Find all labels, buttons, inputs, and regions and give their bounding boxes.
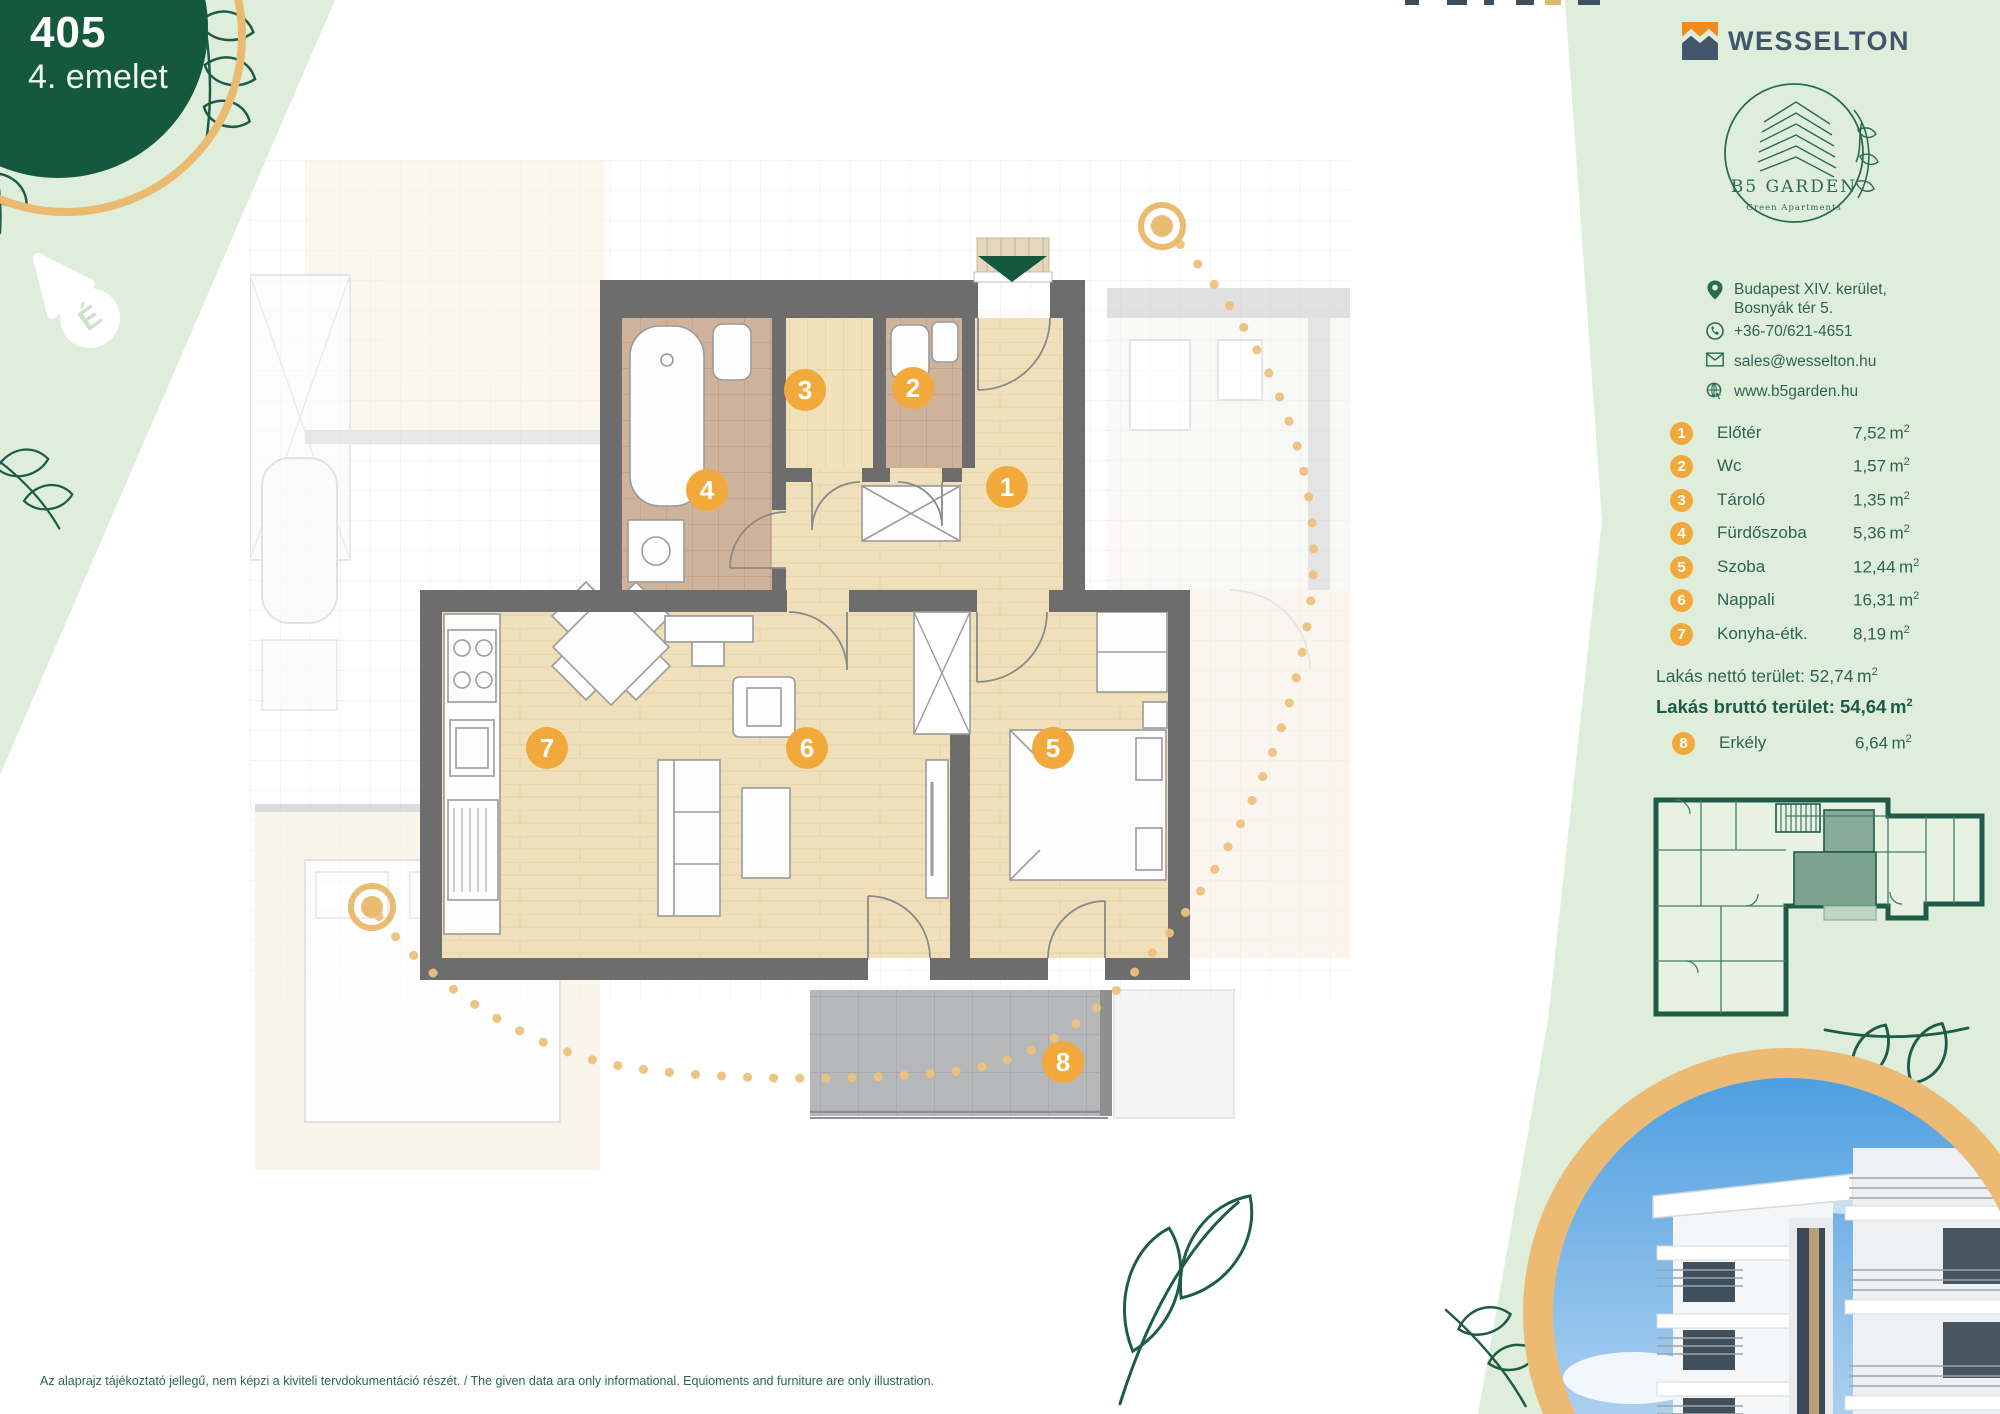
- bedroom-wardrobe: [1097, 612, 1167, 692]
- legend-room-name: Erkély: [1719, 733, 1855, 753]
- top-edge-dash: [1484, 0, 1494, 5]
- photo-left-tower: [1653, 1174, 1853, 1414]
- wesselton-logo-icon: [1682, 22, 1718, 60]
- legend-row-1: 1 Előtér 7,52 m2: [1670, 421, 1910, 445]
- building-photo-art: [1553, 1078, 2000, 1414]
- top-edge-dash: [1516, 0, 1534, 5]
- website-url: www.b5garden.hu: [1734, 382, 1858, 401]
- net-area-total: Lakás nettó terület: 52,74 m2: [1656, 666, 1878, 687]
- address-line2: Bosnyák tér 5.: [1734, 300, 1833, 317]
- legend-badge: 2: [1670, 455, 1693, 478]
- legend-room-area: 8,19 m2: [1853, 624, 1910, 645]
- desk-chair: [692, 642, 724, 666]
- top-edge-dash: [1447, 0, 1467, 5]
- address-line1: Budapest XIV. kerület,: [1734, 281, 1887, 298]
- desk: [665, 616, 753, 642]
- unit-floor-label: 4. emelet: [28, 58, 168, 97]
- toilet: [713, 324, 751, 380]
- email-address: sales@wesselton.hu: [1734, 352, 1876, 371]
- floor-plan: 1 2 3 4 5 6 7 8: [250, 160, 1350, 1180]
- nightstand: [1143, 702, 1167, 728]
- legend-room-area: 12,44 m2: [1853, 557, 1919, 578]
- svg-text:2: 2: [906, 373, 920, 403]
- legend-row-8: 8 Erkély 6,64 m2: [1672, 731, 1912, 755]
- brand-logo: WESSELTON: [1682, 22, 1910, 60]
- globe-icon: [1706, 382, 1724, 400]
- top-edge-dash: [1578, 0, 1600, 5]
- top-edge-dash: [1405, 0, 1419, 5]
- armchair: [733, 677, 795, 737]
- legend-row-7: 7 Konyha-étk. 8,19 m2: [1670, 622, 1910, 646]
- legend-row-2: 2 Wc 1,57 m2: [1670, 454, 1910, 478]
- gross-area-total: Lakás bruttó terület: 54,64 m2: [1656, 696, 1913, 718]
- tv-console: [926, 760, 948, 898]
- washing-machine: [628, 520, 684, 582]
- entrance: [974, 238, 1052, 282]
- project-subtitle: Green Apartments: [1746, 203, 1842, 213]
- phone-icon: [1706, 322, 1724, 340]
- location-pin-icon: [1706, 280, 1724, 300]
- kitchen-cabinet: [448, 800, 498, 900]
- brand-name: WESSELTON: [1728, 26, 1910, 57]
- legend-badge: 6: [1670, 589, 1693, 612]
- legend-row-3: 3 Tároló 1,35 m2: [1670, 488, 1910, 512]
- project-logo: B5 GARDEN Green Apartments: [1712, 70, 1912, 245]
- coffee-table: [742, 788, 790, 878]
- shaft: [914, 612, 970, 734]
- legend-room-area: 7,52 m2: [1853, 423, 1910, 444]
- legend-row-5: 5 Szoba 12,44 m2: [1670, 555, 1919, 579]
- disclaimer-text: Az alaprajz tájékoztató jellegű, nem kép…: [40, 1374, 934, 1388]
- legend-room-name: Wc: [1717, 456, 1853, 476]
- svg-text:3: 3: [798, 375, 812, 405]
- room-badge-1: 1: [986, 466, 1028, 508]
- legend-room-area: 1,57 m2: [1853, 456, 1910, 477]
- legend-room-name: Nappali: [1717, 590, 1853, 610]
- room-badge-3: 3: [784, 369, 826, 411]
- unit-number: 405: [30, 8, 106, 58]
- legend-row-4: 4 Fürdőszoba 5,36 m2: [1670, 521, 1910, 545]
- brochure-page: 405 4. emelet É: [0, 0, 2000, 1414]
- room-badge-6: 6: [786, 727, 828, 769]
- key-plan: [1626, 786, 1994, 1020]
- room-badge-7: 7: [526, 727, 568, 769]
- legend-room-name: Tároló: [1717, 490, 1853, 510]
- north-compass-icon: É: [18, 240, 158, 380]
- svg-text:7: 7: [540, 733, 554, 763]
- contact-address: Budapest XIV. kerület, Bosnyák tér 5.: [1706, 280, 1887, 318]
- contact-website[interactable]: www.b5garden.hu: [1706, 382, 1858, 401]
- legend-room-name: Előtér: [1717, 423, 1853, 443]
- legend-row-6: 6 Nappali 16,31 m2: [1670, 588, 1919, 612]
- legend-badge: 4: [1670, 522, 1693, 545]
- room-badge-4: 4: [686, 469, 728, 511]
- top-edge-dash: [1545, 0, 1561, 5]
- legend-badge: 5: [1670, 556, 1693, 579]
- room-badge-5: 5: [1032, 727, 1074, 769]
- contact-email[interactable]: sales@wesselton.hu: [1706, 352, 1876, 371]
- svg-text:6: 6: [800, 733, 814, 763]
- contact-phone: +36-70/621-4651: [1706, 322, 1853, 341]
- sofa: [658, 760, 720, 916]
- legend-room-area: 16,31 m2: [1853, 590, 1919, 611]
- hall-wardrobe: [862, 486, 960, 541]
- legend-badge: 8: [1672, 732, 1695, 755]
- room-badge-8: 8: [1042, 1041, 1084, 1083]
- svg-text:1: 1: [1000, 472, 1014, 502]
- svg-text:4: 4: [700, 475, 715, 505]
- svg-text:8: 8: [1056, 1047, 1070, 1077]
- legend-badge: 1: [1670, 422, 1693, 445]
- svg-text:5: 5: [1046, 733, 1060, 763]
- legend-badge: 7: [1670, 623, 1693, 646]
- legend-room-name: Fürdőszoba: [1717, 523, 1853, 543]
- legend-room-area: 1,35 m2: [1853, 490, 1910, 511]
- balcony-divider: [1100, 990, 1112, 1116]
- legend-room-area: 5,36 m2: [1853, 523, 1910, 544]
- project-name: B5 GARDEN: [1731, 177, 1857, 197]
- legend-badge: 3: [1670, 489, 1693, 512]
- envelope-icon: [1706, 352, 1724, 367]
- legend-room-name: Konyha-étk.: [1717, 624, 1853, 644]
- wc-sink: [932, 322, 958, 362]
- room-badge-2: 2: [892, 367, 934, 409]
- legend-room-area: 6,64 m2: [1855, 733, 1912, 754]
- phone-number: +36-70/621-4651: [1734, 322, 1853, 341]
- legend-room-name: Szoba: [1717, 557, 1853, 577]
- photo-right-tower: [1845, 1148, 2000, 1414]
